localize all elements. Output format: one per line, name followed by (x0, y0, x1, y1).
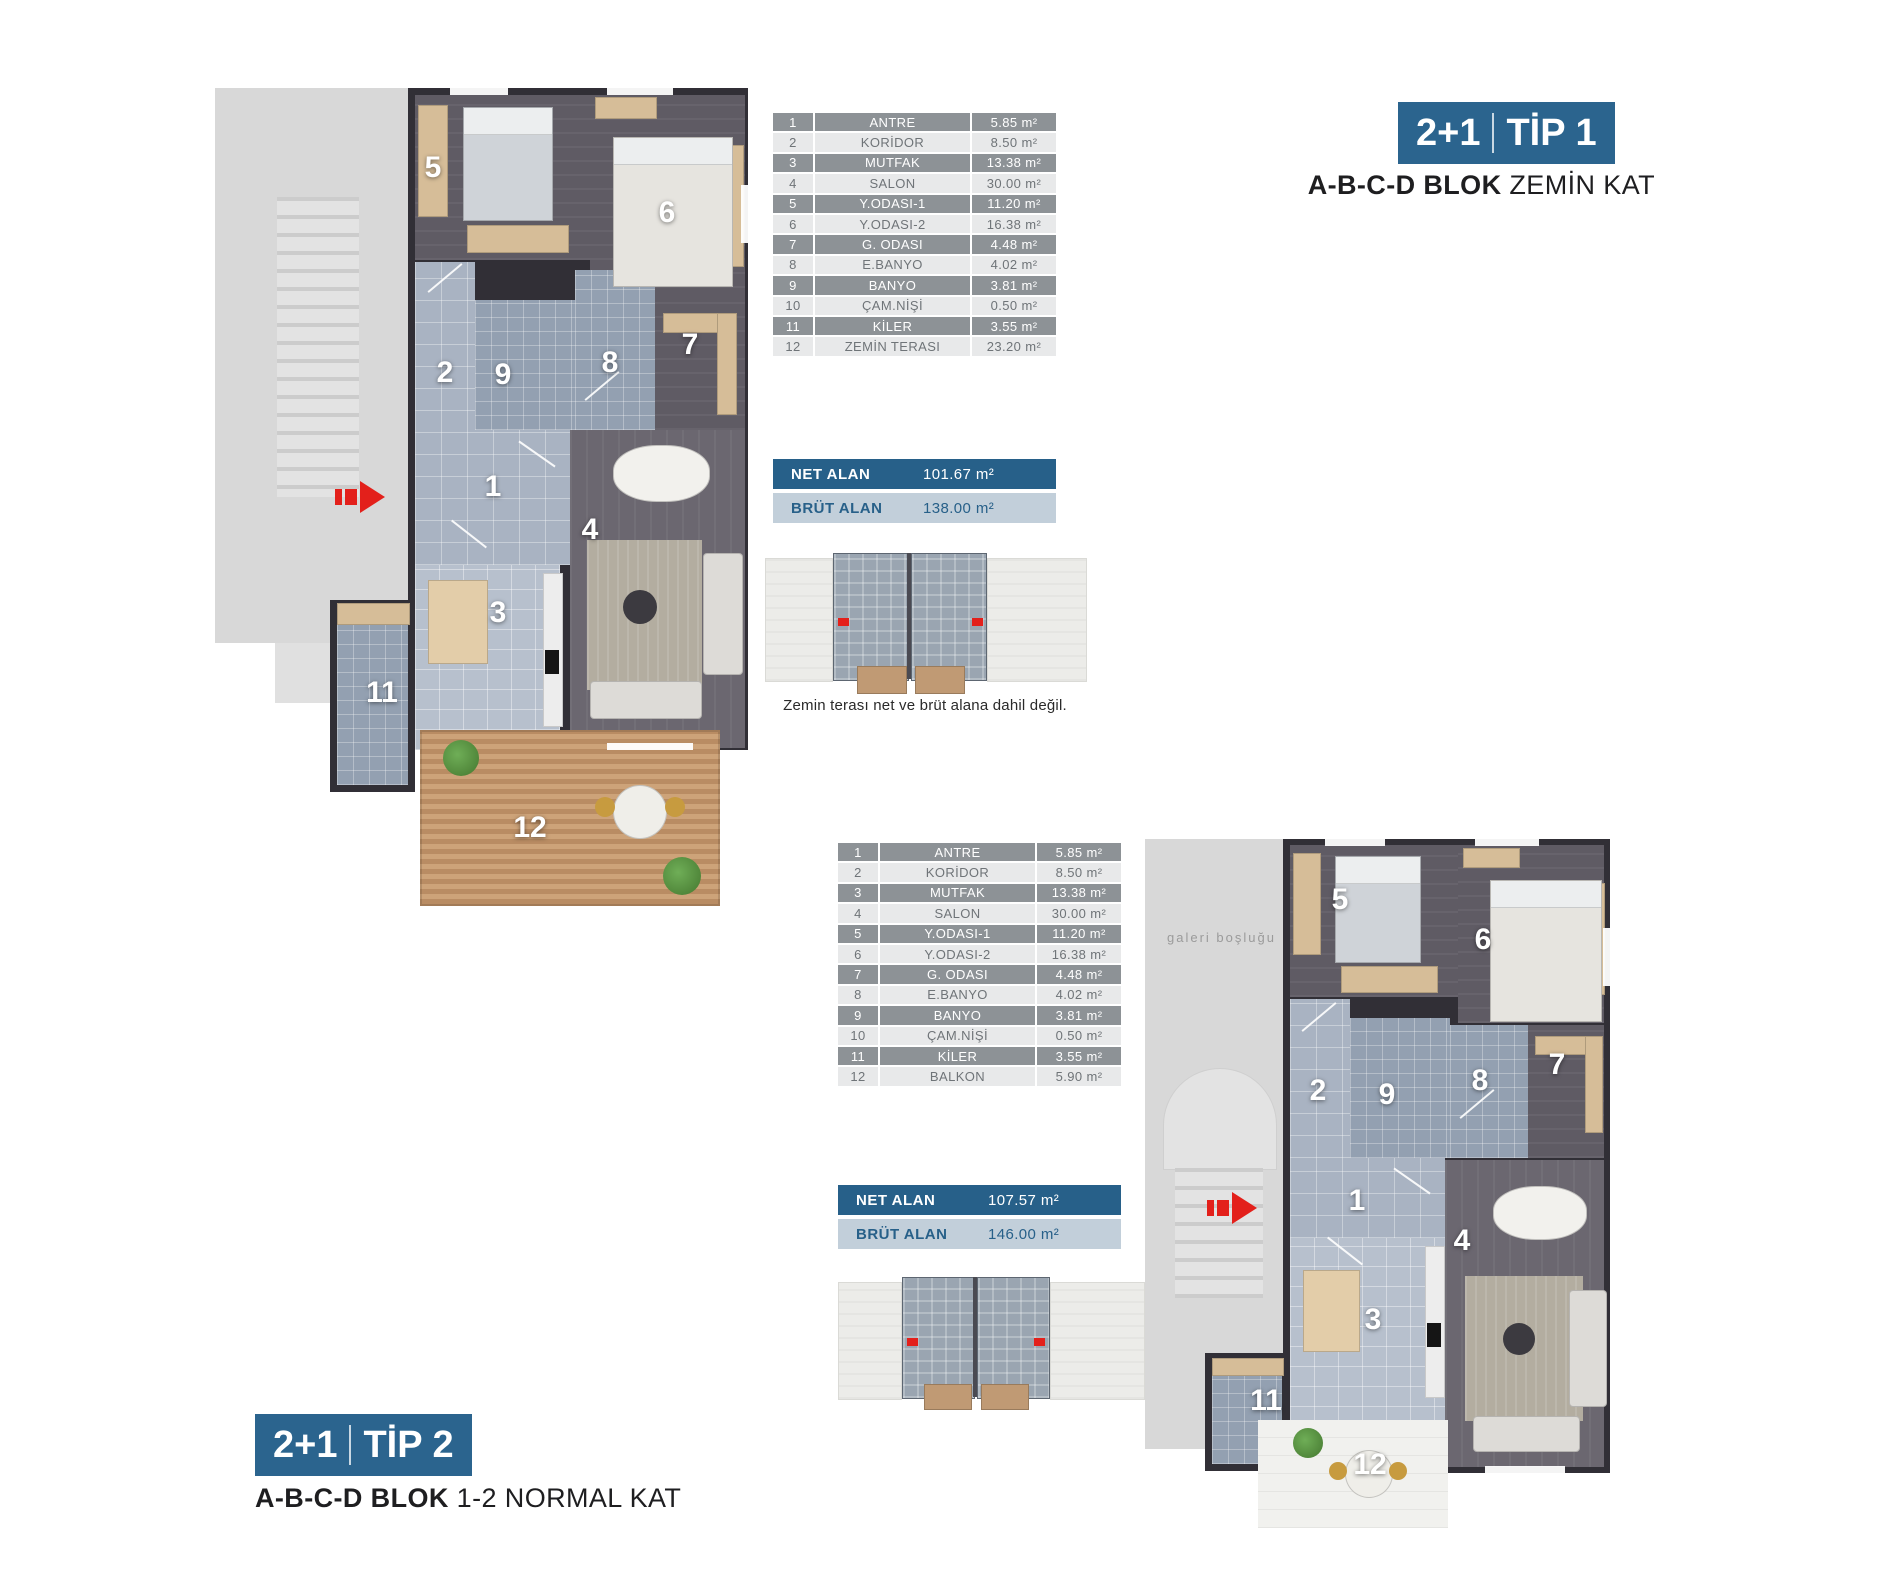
room-table-cell-no: 5 (773, 195, 813, 213)
terrace-chair (595, 797, 615, 817)
room-table-cell-area: 30.00 m² (972, 174, 1056, 192)
room-table-row: 4SALON30.00 m² (838, 904, 1121, 922)
room-table-cell-no: 3 (773, 154, 813, 172)
room-table-cell-no: 4 (838, 904, 878, 922)
subtitle-block: A-B-C-D BLOK (1308, 170, 1502, 200)
room-table-cell-name: Y.ODASI-2 (815, 215, 970, 233)
keyplan-faded-unit (838, 1282, 902, 1400)
room-number-label: 5 (1332, 883, 1349, 917)
net-alan-label: NET ALAN (856, 1192, 935, 1209)
room-table-cell-area: 3.81 m² (972, 276, 1056, 294)
wardrobe-u (1585, 1036, 1603, 1133)
dining-table (613, 445, 710, 502)
wardrobe (1293, 853, 1321, 955)
window (607, 743, 693, 750)
room-table-cell-area: 4.48 m² (972, 235, 1056, 253)
terrace-table (613, 785, 667, 839)
plant (443, 740, 479, 776)
kitchen-table (1303, 1270, 1360, 1352)
room-number-label: 12 (513, 811, 546, 845)
room-table-cell-area: 11.20 m² (972, 195, 1056, 213)
room-table-row: 8E.BANYO4.02 m² (838, 986, 1121, 1004)
terrace-chair (665, 797, 685, 817)
room-banyo (475, 300, 575, 430)
room-table-row: 9BANYO3.81 m² (773, 276, 1056, 294)
keyplan-entrance-dot (1034, 1338, 1045, 1346)
tip1-net-alan-bar: NET ALAN 101.67 m² (773, 459, 1056, 489)
room-table-row: 8E.BANYO4.02 m² (773, 256, 1056, 274)
room-table-row: 12ZEMİN TERASI23.20 m² (773, 337, 1056, 355)
room-number-label: 5 (425, 151, 442, 185)
room-table-cell-area: 0.50 m² (1037, 1027, 1121, 1045)
room-table-row: 1ANTRE5.85 m² (773, 113, 1056, 131)
stove (545, 650, 559, 674)
window (1325, 839, 1385, 846)
room-table-cell-name: Y.ODASI-1 (815, 195, 970, 213)
room-table-row: 3MUTFAK13.38 m² (773, 154, 1056, 172)
arrow-bar (1207, 1200, 1214, 1216)
subtitle-floor: ZEMİN KAT (1509, 170, 1655, 200)
tip1-brut-alan-bar: BRÜT ALAN 138.00 m² (773, 493, 1056, 523)
keyplan-deck (924, 1384, 972, 1410)
room-table-cell-name: ÇAM.NİŞİ (815, 297, 970, 315)
balcony-chair (1329, 1462, 1347, 1480)
room-table-cell-name: ANTRE (880, 843, 1035, 861)
stove (1427, 1323, 1441, 1347)
subtitle-floor: 1-2 NORMAL KAT (457, 1483, 682, 1513)
galeri-label: galeri boşluğu (1167, 930, 1276, 945)
wardrobe (595, 97, 657, 119)
room-table-cell-area: 3.55 m² (1037, 1047, 1121, 1065)
room-number-label: 3 (490, 596, 507, 630)
room-table-cell-name: G. ODASI (815, 235, 970, 253)
window (1475, 839, 1539, 846)
bed-pillow (614, 138, 732, 165)
arrow-bar (335, 489, 342, 505)
tip2-brut-alan-bar: BRÜT ALAN 146.00 m² (838, 1219, 1121, 1249)
keyplan-deck (981, 1384, 1029, 1410)
room-table-cell-name: Y.ODASI-1 (880, 925, 1035, 943)
room-table-cell-name: ANTRE (815, 113, 970, 131)
subtitle-block: A-B-C-D BLOK (255, 1483, 449, 1513)
room-table-cell-name: KORİDOR (880, 863, 1035, 881)
window (741, 185, 748, 243)
keyplan-faded-unit (1050, 1282, 1145, 1400)
brut-alan-value: 146.00 m² (988, 1226, 1059, 1243)
net-alan-label: NET ALAN (791, 466, 870, 483)
room-number-label: 7 (682, 328, 699, 362)
room-table-cell-name: KORİDOR (815, 133, 970, 151)
room-table-cell-no: 12 (773, 337, 813, 355)
arrow-bar (345, 489, 357, 505)
stairwell (277, 197, 359, 497)
badge-type: TİP 1 (1506, 112, 1596, 155)
room-table-cell-area: 30.00 m² (1037, 904, 1121, 922)
room-table-cell-name: MUTFAK (880, 884, 1035, 902)
window (1485, 1466, 1565, 1473)
room-number-label: 4 (582, 513, 599, 547)
room-table-row: 2KORİDOR8.50 m² (838, 863, 1121, 881)
entrance-arrow-icon (335, 481, 385, 513)
room-table-cell-name: SALON (880, 904, 1035, 922)
floorplan-tip1: 5629871431112 (215, 85, 750, 910)
room-table-row: 10ÇAM.NİŞİ0.50 m² (773, 297, 1056, 315)
room-table-cell-name: KİLER (880, 1047, 1035, 1065)
room-table-cell-no: 2 (773, 133, 813, 151)
sofa (1569, 1290, 1607, 1407)
room-table-cell-no: 9 (773, 276, 813, 294)
room-number-label: 4 (1454, 1224, 1471, 1258)
room-table-row: 2KORİDOR8.50 m² (773, 133, 1056, 151)
room-number-label: 12 (1353, 1448, 1386, 1482)
wardrobe-u (717, 313, 737, 415)
badge-divider (1492, 113, 1494, 153)
room-table-cell-no: 1 (838, 843, 878, 861)
coffee-table (1503, 1323, 1535, 1355)
room-table-cell-area: 13.38 m² (1037, 884, 1121, 902)
room-table-cell-name: E.BANYO (815, 256, 970, 274)
room-table-cell-name: BALKON (880, 1067, 1035, 1085)
room-number-label: 1 (1349, 1184, 1366, 1218)
bed-pillow (1336, 857, 1420, 884)
room-table-cell-no: 11 (773, 317, 813, 335)
room-number-label: 8 (1472, 1064, 1489, 1098)
arrow-bar (1217, 1200, 1229, 1216)
room-table-row: 7G. ODASI4.48 m² (838, 965, 1121, 983)
room-table-cell-area: 5.85 m² (972, 113, 1056, 131)
room-table-cell-name: G. ODASI (880, 965, 1035, 983)
room-number-label: 2 (437, 356, 454, 390)
kiler-cabinet (337, 603, 410, 625)
arrow-head (360, 481, 385, 513)
kitchen-table (428, 580, 488, 664)
room-table-cell-no: 12 (838, 1067, 878, 1085)
room-number-label: 11 (366, 676, 398, 710)
net-alan-value: 107.57 m² (988, 1192, 1059, 1209)
window (1603, 928, 1610, 986)
room-table-cell-area: 4.02 m² (972, 256, 1056, 274)
room-table-cell-no: 8 (773, 256, 813, 274)
room-table-cell-area: 8.50 m² (972, 133, 1056, 151)
room-number-label: 7 (1549, 1048, 1566, 1082)
keyplan-entrance-dot (907, 1338, 918, 1346)
sofa (703, 553, 743, 675)
bed-single (463, 107, 553, 221)
room-table-cell-no: 10 (838, 1027, 878, 1045)
entrance-arrow-icon (1207, 1192, 1257, 1224)
tip1-badge: 2+1 TİP 1 (1398, 102, 1615, 164)
room-table-row: 11KİLER3.55 m² (838, 1047, 1121, 1065)
room-table-cell-no: 1 (773, 113, 813, 131)
brochure-page: 5629871431112 1ANTRE5.85 m²2KORİDOR8.50 … (0, 0, 1900, 1593)
brut-alan-label: BRÜT ALAN (856, 1226, 947, 1243)
badge-type: TİP 2 (363, 1424, 453, 1467)
keyplan-active-unit (833, 553, 909, 681)
tip1-subtitle: A-B-C-D BLOK ZEMİN KAT (1308, 170, 1655, 201)
room-number-label: 9 (1379, 1078, 1396, 1112)
room-table-cell-name: Y.ODASI-2 (880, 945, 1035, 963)
keyplan-entrance-dot (838, 618, 849, 626)
room-table-cell-area: 3.55 m² (972, 317, 1056, 335)
dining-table (1493, 1186, 1587, 1240)
tip2-keyplan (838, 1272, 1143, 1414)
room-table-row: 6Y.ODASI-216.38 m² (838, 945, 1121, 963)
room-number-label: 2 (1310, 1074, 1327, 1108)
room-antre (1290, 1158, 1445, 1238)
tip2-net-alan-bar: NET ALAN 107.57 m² (838, 1185, 1121, 1215)
room-table-row: 12BALKON5.90 m² (838, 1067, 1121, 1085)
room-number-label: 3 (1365, 1303, 1382, 1337)
badge-rooms: 2+1 (1416, 112, 1480, 155)
room-table-cell-name: SALON (815, 174, 970, 192)
net-alan-value: 101.67 m² (923, 466, 994, 483)
kitchen-counter (1425, 1246, 1445, 1398)
room-table-cell-name: MUTFAK (815, 154, 970, 172)
room-number-label: 8 (602, 346, 619, 380)
window (450, 88, 508, 95)
room-table-cell-no: 7 (838, 965, 878, 983)
room-table-cell-name: BANYO (815, 276, 970, 294)
room-table-row: 5Y.ODASI-111.20 m² (773, 195, 1056, 213)
room-table-cell-no: 5 (838, 925, 878, 943)
room-table-cell-area: 0.50 m² (972, 297, 1056, 315)
floorplan-tip2: galeri boşluğu (1145, 818, 1610, 1533)
room-table-cell-area: 23.20 m² (972, 337, 1056, 355)
room-table-cell-area: 13.38 m² (972, 154, 1056, 172)
desk (1341, 966, 1438, 993)
tip2-subtitle: A-B-C-D BLOK 1-2 NORMAL KAT (255, 1483, 681, 1514)
room-table-row: 11KİLER3.55 m² (773, 317, 1056, 335)
room-table-cell-no: 6 (838, 945, 878, 963)
room-table-row: 3MUTFAK13.38 m² (838, 884, 1121, 902)
room-table-row: 7G. ODASI4.48 m² (773, 235, 1056, 253)
room-table-cell-no: 10 (773, 297, 813, 315)
bed-pillow (464, 108, 552, 135)
tip1-keyplan (765, 548, 1085, 696)
room-table-cell-area: 16.38 m² (972, 215, 1056, 233)
room-number-label: 1 (485, 470, 502, 504)
room-table-cell-area: 5.90 m² (1037, 1067, 1121, 1085)
keyplan-deck (915, 666, 965, 694)
bed-pillow (1491, 881, 1601, 908)
room-table-cell-area: 3.81 m² (1037, 1006, 1121, 1024)
stairwell-arch (1163, 1068, 1277, 1170)
coffee-table (623, 590, 657, 624)
room-table-cell-area: 5.85 m² (1037, 843, 1121, 861)
room-table-cell-no: 7 (773, 235, 813, 253)
plant (663, 857, 701, 895)
room-table-row: 4SALON30.00 m² (773, 174, 1056, 192)
bed-double (1490, 880, 1602, 1022)
keyplan-entrance-dot (972, 618, 983, 626)
keyplan-active-unit (911, 553, 987, 681)
room-table-cell-no: 3 (838, 884, 878, 902)
room-table-cell-no: 11 (838, 1047, 878, 1065)
brut-alan-label: BRÜT ALAN (791, 500, 882, 517)
badge-divider (349, 1425, 351, 1465)
badge-rooms: 2+1 (273, 1424, 337, 1467)
room-table-cell-area: 8.50 m² (1037, 863, 1121, 881)
room-table-cell-area: 4.48 m² (1037, 965, 1121, 983)
balcony-chair (1389, 1462, 1407, 1480)
stairwell (1175, 1168, 1263, 1298)
room-table-row: 6Y.ODASI-216.38 m² (773, 215, 1056, 233)
terrace-note: Zemin terası net ve brüt alana dahil değ… (755, 697, 1095, 714)
arrow-head (1232, 1192, 1257, 1224)
room-table-row: 1ANTRE5.85 m² (838, 843, 1121, 861)
room-table-cell-no: 6 (773, 215, 813, 233)
room-number-label: 9 (495, 358, 512, 392)
room-table-cell-no: 8 (838, 986, 878, 1004)
desk (467, 225, 569, 253)
window (607, 88, 673, 95)
room-number-label: 11 (1250, 1384, 1282, 1418)
room-table-cell-area: 16.38 m² (1037, 945, 1121, 963)
room-table-cell-no: 9 (838, 1006, 878, 1024)
sofa (590, 681, 702, 719)
keyplan-deck (857, 666, 907, 694)
room-number-label: 6 (659, 196, 676, 230)
room-table-cell-no: 4 (773, 174, 813, 192)
room-table-row: 10ÇAM.NİŞİ0.50 m² (838, 1027, 1121, 1045)
wardrobe (1463, 848, 1520, 868)
room-table-cell-area: 11.20 m² (1037, 925, 1121, 943)
room-table-cell-name: ZEMİN TERASI (815, 337, 970, 355)
keyplan-faded-unit (765, 558, 833, 682)
room-table-cell-name: E.BANYO (880, 986, 1035, 1004)
room-banyo (1350, 1018, 1450, 1158)
room-table-row: 5Y.ODASI-111.20 m² (838, 925, 1121, 943)
keyplan-seam (973, 1277, 977, 1397)
keyplan-faded-unit (987, 558, 1087, 682)
tip1-room-table: 1ANTRE5.85 m²2KORİDOR8.50 m²3MUTFAK13.38… (773, 113, 1056, 356)
room-table-cell-name: KİLER (815, 317, 970, 335)
room-table-cell-name: ÇAM.NİŞİ (880, 1027, 1035, 1045)
kiler-cabinet (1212, 1358, 1284, 1376)
keyplan-seam (907, 553, 911, 679)
room-number-label: 6 (1475, 923, 1492, 957)
room-table-cell-area: 4.02 m² (1037, 986, 1121, 1004)
sofa (1473, 1416, 1580, 1452)
room-table-row: 9BANYO3.81 m² (838, 1006, 1121, 1024)
tip2-badge: 2+1 TİP 2 (255, 1414, 472, 1476)
room-table-cell-name: BANYO (880, 1006, 1035, 1024)
room-table-cell-no: 2 (838, 863, 878, 881)
plant (1293, 1428, 1323, 1458)
brut-alan-value: 138.00 m² (923, 500, 994, 517)
tip2-room-table: 1ANTRE5.85 m²2KORİDOR8.50 m²3MUTFAK13.38… (838, 843, 1121, 1086)
